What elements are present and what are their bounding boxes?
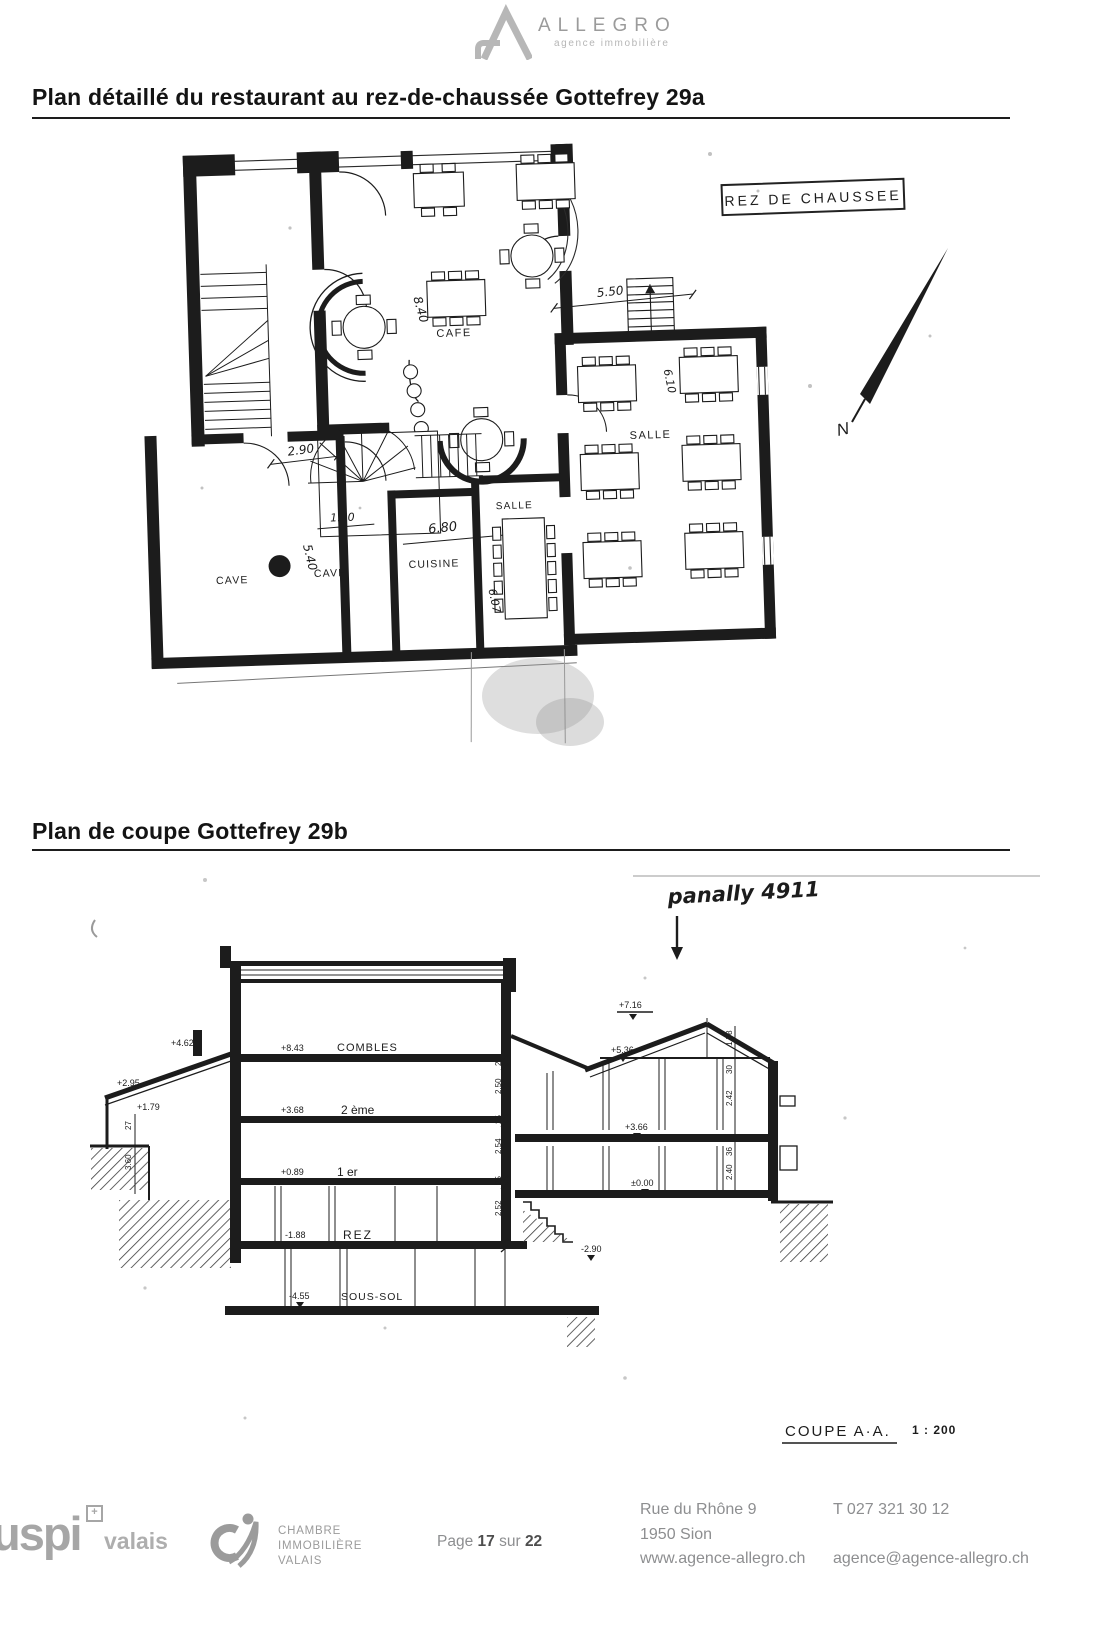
elev-stair: -2.90 [581, 1244, 602, 1254]
section-scale: 1 : 200 [912, 1423, 956, 1437]
elev-combles: +8.43 [281, 1043, 304, 1053]
chambre-immobiliere-text: CHAMBRE IMMOBILIÈRE VALAIS [278, 1524, 362, 1569]
room-label-cafe: CAFE [436, 327, 472, 340]
level-1er: 1 er [337, 1165, 358, 1179]
chambre-immobiliere-icon [203, 1512, 269, 1570]
chambre-line-3: VALAIS [278, 1554, 362, 1569]
elev-rez: -1.88 [285, 1230, 306, 1240]
elev-1er: +0.89 [281, 1167, 304, 1177]
room-label-salle-mid: SALLE [496, 500, 533, 512]
page-prefix: Page [437, 1533, 473, 1550]
dim-left-3: 2.54 [494, 1138, 503, 1154]
dim-left-4: 25 [494, 1176, 503, 1185]
agency-logo: ALLEGRO agence immobilière [470, 2, 710, 60]
floor-plan-drawing: CAFE 8.40 5.50 [110, 136, 990, 771]
elev-ridge: +7.16 [619, 1000, 642, 1010]
section-drawing: panally 4911 +4.62 +2.95 +1.79 27 3.60 [85, 858, 1045, 1458]
dim-left-1: 2.50 [494, 1078, 503, 1094]
dim-right-3: 36 [725, 1147, 734, 1156]
document-page: ALLEGRO agence immobilière Plan détaillé… [0, 0, 1100, 1641]
elev-sous-sol: -4.55 [289, 1291, 310, 1301]
brand-name: ALLEGRO [538, 15, 677, 37]
dim-left-0: 25 [494, 1057, 503, 1066]
elev-ground-right: ±0.00 [631, 1178, 653, 1188]
agency-contact: T 027 321 30 12 agence@agence-allegro.ch [833, 1498, 1029, 1572]
agency-phone: T 027 321 30 12 [833, 1498, 1029, 1523]
chambre-line-2: IMMOBILIÈRE [278, 1539, 362, 1554]
elev-left-2: +2.95 [117, 1078, 140, 1088]
uspi-logo: uspi [0, 1506, 81, 1561]
page-number: 17 [478, 1533, 495, 1550]
dim-far-left-0: 27 [124, 1121, 133, 1130]
title-section-plan: Plan de coupe Gottefrey 29b [32, 818, 348, 845]
chambre-line-1: CHAMBRE [278, 1524, 362, 1539]
agency-website: www.agence-allegro.ch [640, 1547, 805, 1572]
room-label-cave-mid: CAVE [314, 567, 347, 580]
elev-left-3: +1.79 [137, 1102, 160, 1112]
scan-noise-2 [143, 878, 966, 1420]
agency-email: agence@agence-allegro.ch [833, 1547, 1029, 1572]
allegro-a-icon [470, 4, 532, 60]
elev-floor-right: +3.66 [625, 1122, 648, 1132]
dim-right-4: 2.40 [725, 1164, 734, 1180]
room-label-salle-right: SALLE [629, 429, 671, 442]
level-combles: COMBLES [337, 1042, 398, 1054]
brand-tagline: agence immobilière [554, 38, 670, 49]
page-total: 22 [525, 1533, 542, 1550]
section-caption: COUPE A·A. [785, 1423, 891, 1440]
handwritten-note: panally 4911 [666, 877, 820, 909]
agency-address: Rue du Rhône 9 1950 Sion www.agence-alle… [640, 1498, 805, 1572]
page-indicator: Page 17 sur 22 [437, 1533, 542, 1551]
plan-label-box: REZ DE CHAUSSEE [722, 179, 905, 215]
dim-680: 6.80 [428, 520, 458, 538]
dim-610: 6.10 [661, 368, 679, 395]
swiss-cross-icon: + [86, 1505, 103, 1522]
level-rez: REZ [343, 1228, 373, 1242]
north-label: N [835, 419, 852, 440]
level-2eme: 2 ème [341, 1103, 375, 1117]
address-line-2: 1950 Sion [640, 1523, 805, 1548]
title-rule-1 [32, 117, 1010, 119]
north-arrow-icon: N [835, 248, 948, 440]
elev-2eme: +3.68 [281, 1105, 304, 1115]
uspi-name: uspi [0, 1507, 81, 1560]
elev-attic: +5.36 [611, 1045, 634, 1055]
room-label-cuisine: CUISINE [408, 557, 459, 571]
elev-left-1: +4.62 [171, 1038, 194, 1048]
dim-right-1: 30 [725, 1065, 734, 1074]
dim-left-2: 25 [494, 1115, 503, 1124]
title-floor-plan: Plan détaillé du restaurant au rez-de-ch… [32, 84, 705, 111]
dim-290: 2.90 [287, 441, 316, 459]
title-rule-2 [32, 849, 1010, 851]
uspi-region: valais [104, 1528, 168, 1555]
level-sous-sol: SOUS-SOL [341, 1291, 403, 1303]
dim-left-5: 2.52 [494, 1200, 503, 1216]
page-separator: sur [499, 1533, 521, 1550]
address-line-1: Rue du Rhône 9 [640, 1498, 805, 1523]
dim-right-2: 2.42 [725, 1090, 734, 1106]
room-label-cave-left: CAVE [216, 574, 249, 587]
dim-550: 5.50 [596, 283, 624, 300]
dim-right-0: 1.78 [725, 1030, 734, 1046]
